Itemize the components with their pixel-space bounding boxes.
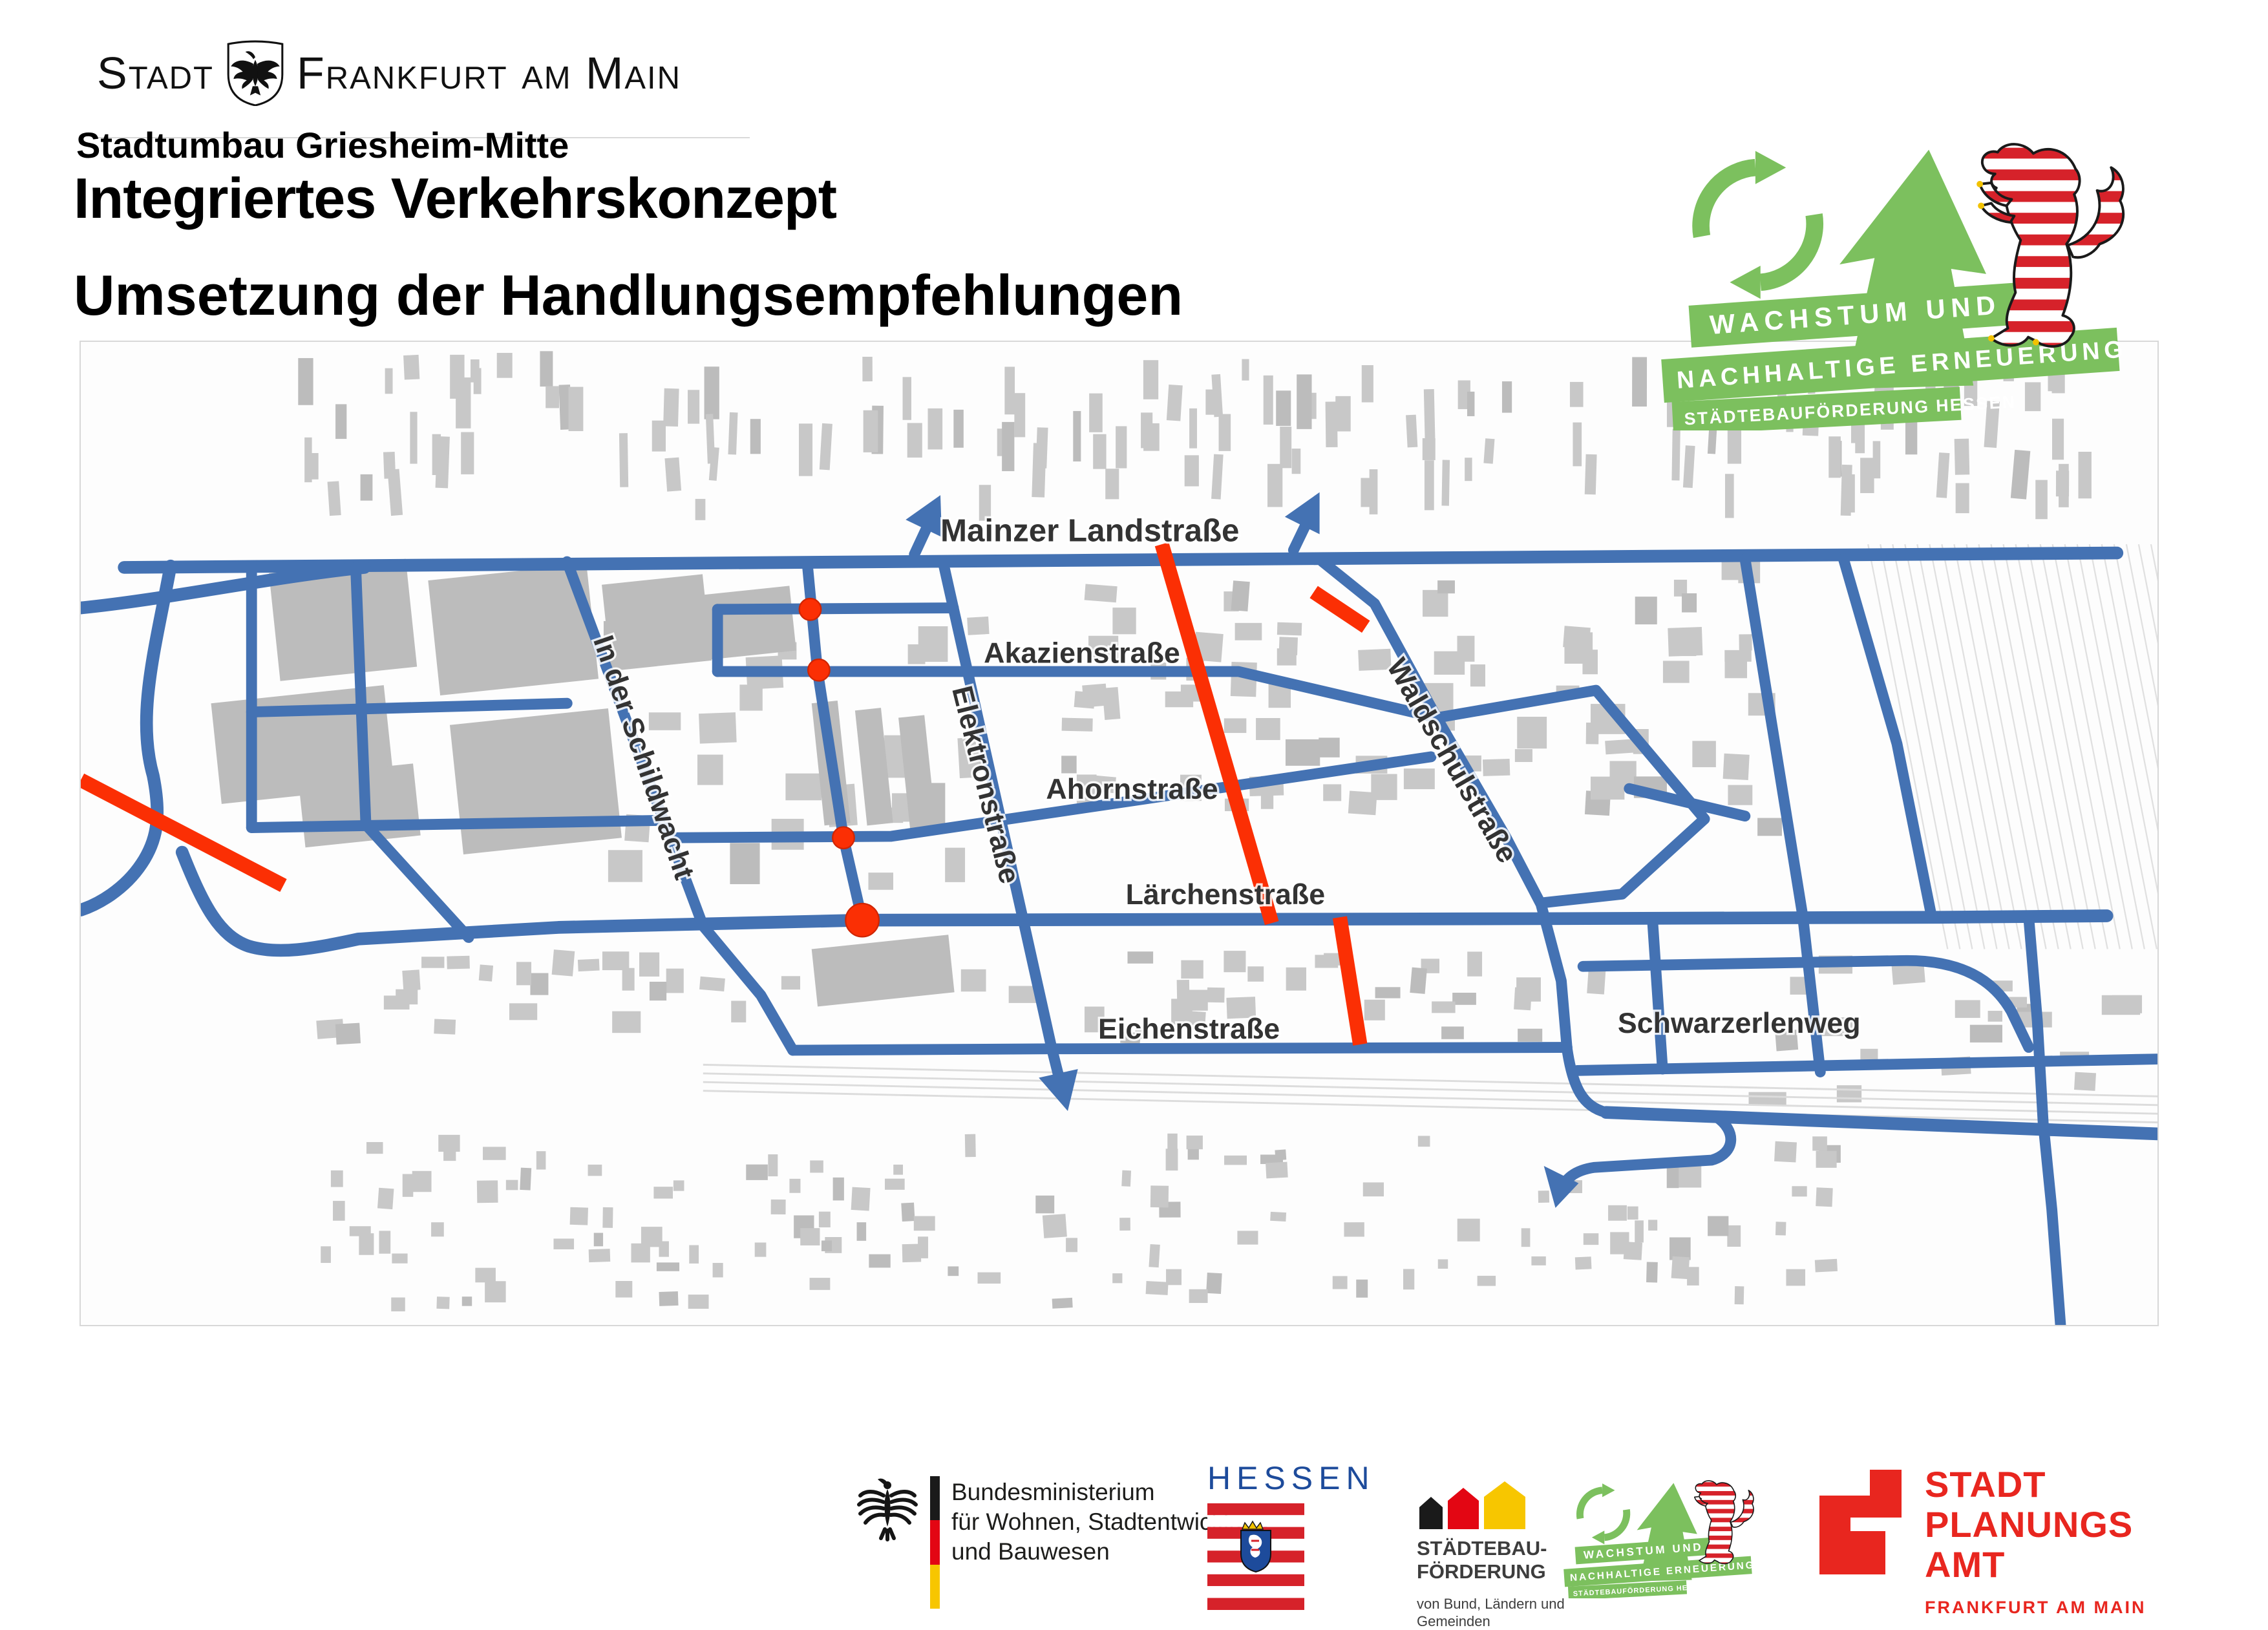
closure-dot	[845, 904, 878, 937]
city-logo-word-frankfurt: Frankfurt am Main	[297, 47, 681, 99]
planungsamt-line-1: STADT	[1925, 1465, 2146, 1505]
growth-renewal-logo: WACHSTUM UND NACHHALTIGE ERNEUERUNG STÄD…	[1655, 111, 2126, 430]
road-turn-hook	[1560, 1117, 1731, 1191]
recycle-arrows-icon	[1701, 167, 1815, 282]
staedtebau-line-1: STÄDTEBAU-	[1417, 1537, 1547, 1560]
logo-staedtebaufoerderung: STÄDTEBAU- FÖRDERUNG von Bund, Ländern u…	[1417, 1481, 1565, 1630]
hessen-wordmark: HESSEN	[1207, 1459, 1375, 1497]
german-flag-stripe	[930, 1476, 940, 1609]
closure-dot	[808, 659, 830, 681]
closure-dot	[800, 598, 821, 620]
traffic-concept-map: Mainzer Landstraße Akazienstraße Ahornst…	[79, 341, 2159, 1326]
staedtebau-sub-2: Gemeinden	[1417, 1613, 1565, 1630]
hessen-flag-icon	[1207, 1503, 1304, 1610]
planungsamt-sub: FRANKFURT AM MAIN	[1925, 1598, 2146, 1618]
buildings-layer	[211, 351, 2143, 1311]
logo-growth-renewal-small: WACHSTUM UND NACHHALTIGE ERNEUERUNG STÄD…	[1561, 1467, 1755, 1598]
planungsamt-text: STADT PLANUNGS AMT FRANKFURT AM MAIN	[1925, 1465, 2146, 1618]
planungsamt-line-3: AMT	[1925, 1545, 2146, 1585]
federal-eagle-icon	[856, 1475, 918, 1543]
city-logo: Stadt Frankfurt am Main	[97, 40, 681, 106]
staedtebau-title: STÄDTEBAU- FÖRDERUNG	[1417, 1537, 1547, 1583]
road	[1653, 918, 1663, 1069]
staedtebau-sub-1: von Bund, Ländern und	[1417, 1595, 1565, 1613]
poster-page: { "colors": { "road": "#4472b3", "highli…	[0, 0, 2268, 1603]
growth-renewal-small-canvas: WACHSTUM UND NACHHALTIGE ERNEUERUNG STÄD…	[1561, 1467, 1755, 1598]
staedtebau-line-2: FÖRDERUNG	[1417, 1560, 1547, 1583]
allotment-hatch	[1868, 544, 2157, 949]
street-label-akazienstrasse: Akazienstraße	[984, 637, 1180, 670]
frankfurt-eagle-shield-icon	[227, 40, 284, 106]
road	[1745, 559, 1820, 1072]
road-west-curve	[81, 566, 171, 910]
page-title: Integriertes Verkehrskonzept	[74, 165, 836, 231]
street-label-eichenstrasse: Eichenstraße	[1098, 1013, 1280, 1045]
road-mainzer-landstrasse	[124, 553, 2117, 567]
railway-lines	[703, 1064, 2157, 1122]
closure-line	[1162, 544, 1272, 923]
street-label-ahornstrasse: Ahornstraße	[1046, 773, 1218, 805]
city-logo-word-stadt: Stadt	[97, 47, 214, 99]
street-label-schwarzerlenweg: Schwarzerlenweg	[1618, 1007, 1861, 1039]
page-subtitle: Umsetzung der Handlungsempfehlungen	[74, 262, 1183, 328]
logo-hessen: HESSEN	[1207, 1459, 1375, 1610]
three-houses-icon	[1417, 1481, 1528, 1532]
road	[717, 608, 953, 609]
street-label-laerchenstrasse: Lärchenstraße	[1126, 878, 1326, 911]
staedtebau-subtitle: von Bund, Ländern und Gemeinden	[1417, 1595, 1565, 1630]
road-eichenstrasse	[793, 1048, 1567, 1050]
closure-line	[1340, 917, 1360, 1044]
map-canvas: Mainzer Landstraße Akazienstraße Ahornst…	[81, 342, 2157, 1325]
street-label-mainzer-landstrasse: Mainzer Landstraße	[940, 513, 1239, 549]
closure-dot	[832, 827, 854, 849]
road	[251, 820, 659, 827]
planungsamt-glyph-icon	[1810, 1465, 1907, 1576]
logo-stadtplanungsamt: STADT PLANUNGS AMT FRANKFURT AM MAIN	[1810, 1465, 2146, 1618]
page-kicker: Stadtumbau Griesheim-Mitte	[76, 124, 569, 166]
planungsamt-line-2: PLANUNGS	[1925, 1505, 2146, 1545]
